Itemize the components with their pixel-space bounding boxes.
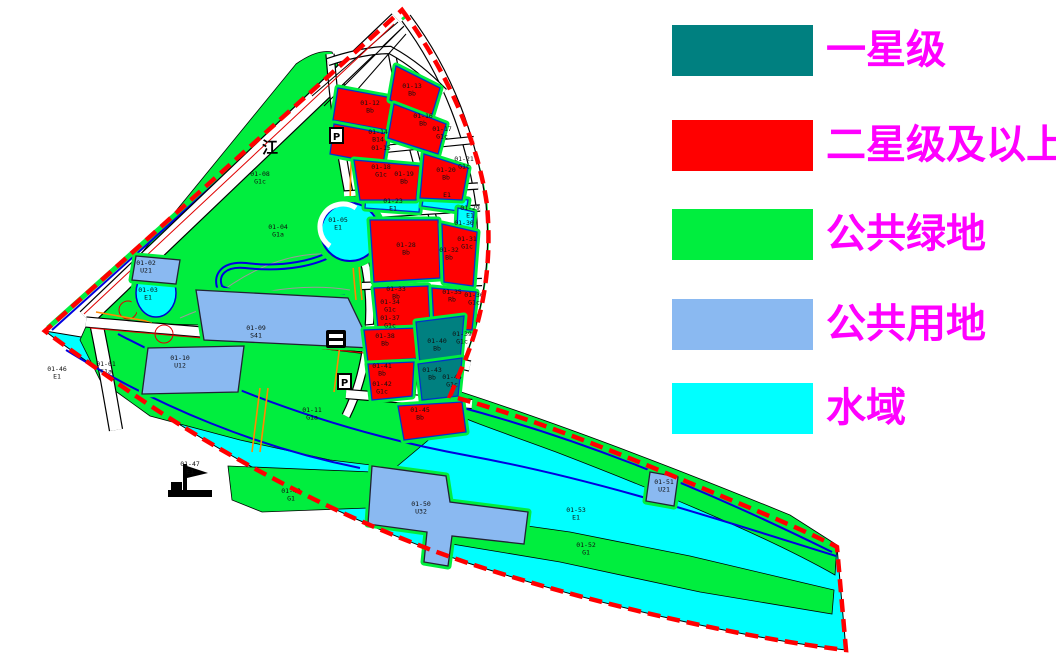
one-star-swatch: [672, 25, 813, 76]
parcel-label-01-30: 01-30: [454, 219, 474, 227]
two-star-plus-swatch: [672, 120, 813, 171]
parcel-label-01-46: 01-46E1: [47, 365, 67, 381]
svg-text:P: P: [341, 378, 348, 389]
water-swatch: [672, 383, 813, 434]
two-star-plus-label: 二星级及以上: [826, 120, 1056, 171]
parcel-01-10: [142, 346, 244, 394]
river-name-char: 江: [262, 138, 278, 157]
parking-icon: P: [330, 128, 343, 143]
public-green-label: 公共绿地: [826, 209, 986, 260]
water-label: 水域: [826, 383, 906, 434]
planning-map-page: P P 江 01-01G1a01-02U2101-03E101-04G1a01-…: [0, 0, 1056, 658]
one-star-label: 一星级: [826, 25, 946, 76]
svg-text:P: P: [333, 132, 340, 143]
parcel-label-01-15: 01-15: [371, 144, 391, 152]
public-land-swatch: [672, 299, 813, 350]
parking-icon: P: [338, 374, 351, 389]
public-land-label: 公共用地: [826, 299, 986, 350]
parcel-label-E1: E1: [443, 191, 451, 199]
public-green-swatch: [672, 209, 813, 260]
legend: 一星级二星级及以上公共绿地公共用地水域: [650, 0, 1056, 460]
transit-station-icon: [326, 330, 346, 348]
